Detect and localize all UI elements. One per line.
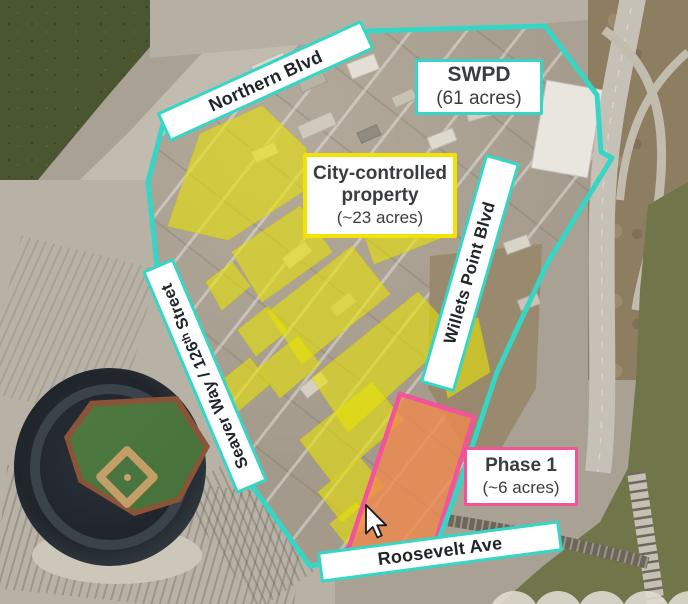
area-label-city-controlled: City-controlled property (~23 acres): [303, 153, 457, 238]
area-title: City-controlled property: [311, 163, 449, 207]
map-annotation-overlay: [0, 0, 688, 604]
area-title: SWPD: [448, 63, 511, 87]
area-subtitle: (61 acres): [436, 88, 522, 111]
area-subtitle: (~23 acres): [337, 208, 423, 228]
satellite-map: Northern Blvd Seaver Way / 126ᵗʰ Street …: [0, 0, 688, 604]
highway-road: [598, 0, 634, 472]
area-label-swpd: SWPD (61 acres): [415, 59, 543, 115]
area-label-phase-1: Phase 1 (~6 acres): [464, 447, 578, 506]
area-subtitle: (~6 acres): [483, 478, 560, 498]
area-title: Phase 1: [485, 455, 557, 477]
cursor-icon: [364, 504, 388, 540]
